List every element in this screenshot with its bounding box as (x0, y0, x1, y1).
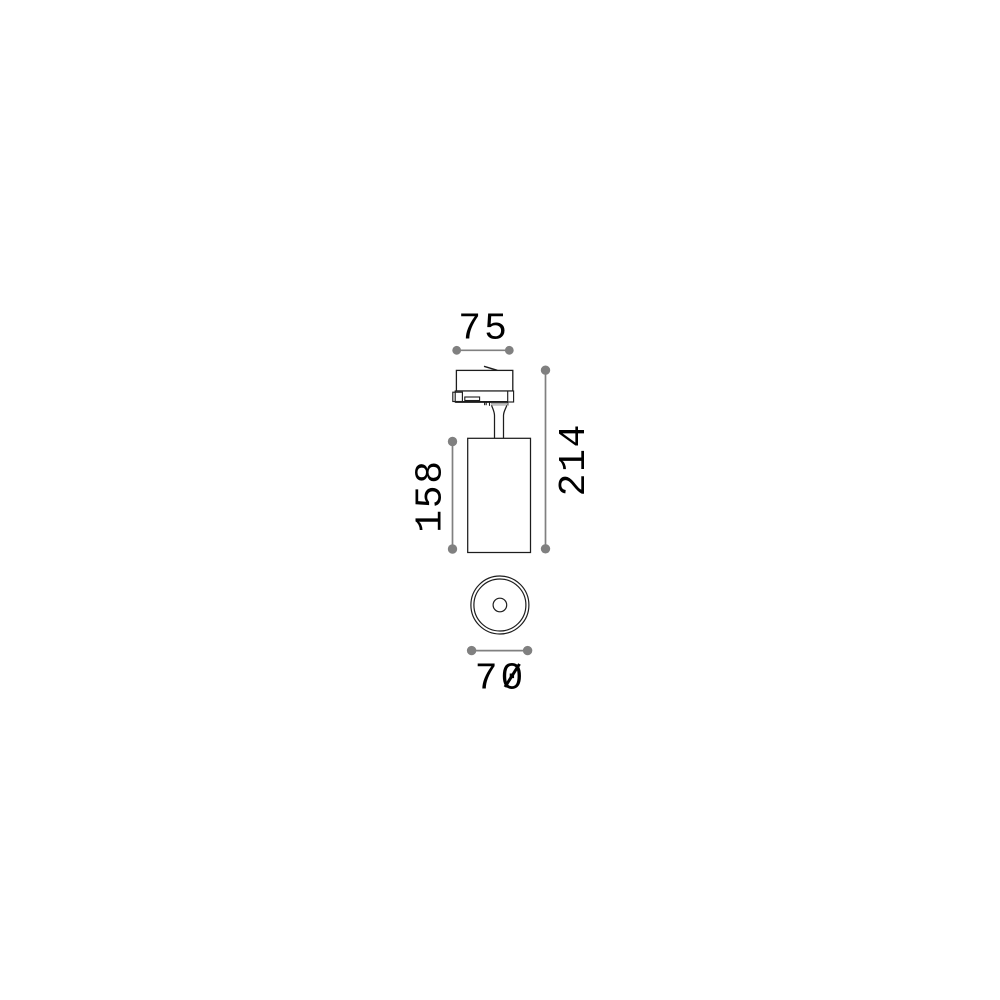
svg-text:75: 75 (458, 308, 510, 351)
svg-text:214: 214 (553, 423, 596, 497)
svg-text:158: 158 (410, 459, 453, 533)
